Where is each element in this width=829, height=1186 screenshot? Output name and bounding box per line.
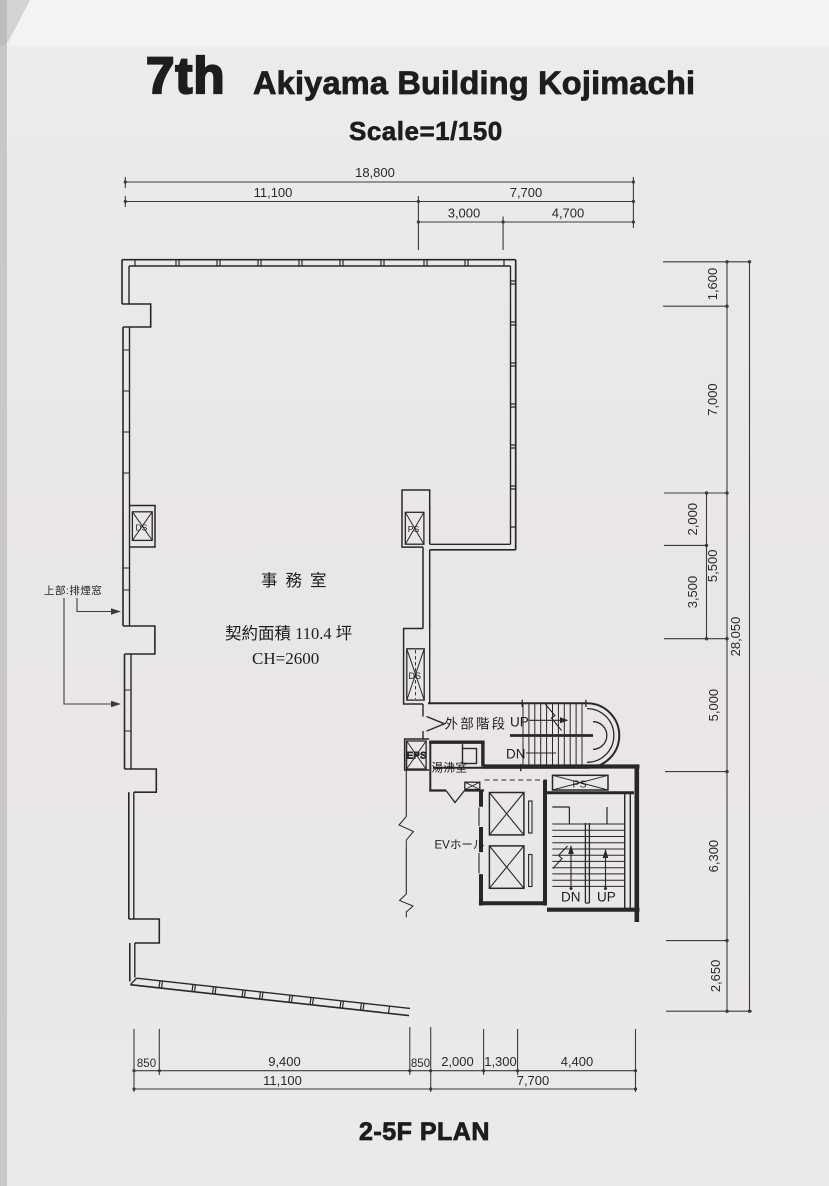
svg-text:1,600: 1,600 — [705, 268, 720, 301]
svg-text:850: 850 — [411, 1058, 430, 1070]
svg-text:1,300: 1,300 — [484, 1054, 517, 1069]
svg-text:EPS: EPS — [407, 750, 427, 761]
svg-text:DN: DN — [506, 747, 526, 762]
svg-text:PS: PS — [573, 779, 587, 791]
svg-text:2,000: 2,000 — [685, 503, 700, 536]
svg-text:Scale=1/150: Scale=1/150 — [349, 116, 503, 146]
svg-text:湯沸室: 湯沸室 — [432, 761, 468, 775]
svg-text:事務室: 事務室 — [261, 571, 335, 590]
svg-text:7th: 7th — [146, 47, 226, 104]
svg-text:PS: PS — [408, 524, 420, 534]
svg-text:9,400: 9,400 — [268, 1054, 301, 1069]
svg-text:UP: UP — [597, 890, 616, 905]
svg-text:DS: DS — [409, 671, 422, 681]
svg-text:5,000: 5,000 — [706, 689, 721, 722]
svg-text:2,650: 2,650 — [708, 960, 723, 993]
svg-text:DS: DS — [136, 523, 148, 533]
svg-text:11,100: 11,100 — [263, 1073, 302, 1088]
svg-text:11,100: 11,100 — [254, 185, 293, 200]
svg-text:3,500: 3,500 — [685, 576, 700, 609]
svg-text:2,000: 2,000 — [441, 1054, 474, 1069]
svg-text:Akiyama Building Kojimachi: Akiyama Building Kojimachi — [253, 65, 695, 101]
svg-text:EVホール: EVホール — [435, 839, 485, 852]
svg-text:上部:排煙窓: 上部:排煙窓 — [44, 584, 102, 597]
svg-text:6,300: 6,300 — [706, 840, 721, 873]
svg-text:850: 850 — [137, 1058, 156, 1070]
svg-text:契約面積 110.4 坪: 契約面積 110.4 坪 — [225, 624, 352, 643]
svg-text:3,000: 3,000 — [448, 206, 481, 221]
svg-text:DN: DN — [561, 890, 581, 905]
svg-text:7,700: 7,700 — [517, 1073, 550, 1088]
svg-text:5,500: 5,500 — [705, 550, 720, 583]
svg-text:CH=2600: CH=2600 — [252, 649, 319, 668]
svg-text:7,000: 7,000 — [705, 383, 720, 416]
svg-text:4,700: 4,700 — [552, 206, 585, 221]
svg-text:4,400: 4,400 — [561, 1054, 594, 1069]
svg-text:18,800: 18,800 — [355, 165, 395, 180]
svg-text:外部階段: 外部階段 — [445, 717, 508, 732]
svg-text:UP: UP — [510, 715, 529, 730]
svg-text:28,050: 28,050 — [728, 617, 743, 657]
svg-text:2-5F PLAN: 2-5F PLAN — [359, 1118, 490, 1146]
svg-text:7,700: 7,700 — [510, 185, 543, 200]
